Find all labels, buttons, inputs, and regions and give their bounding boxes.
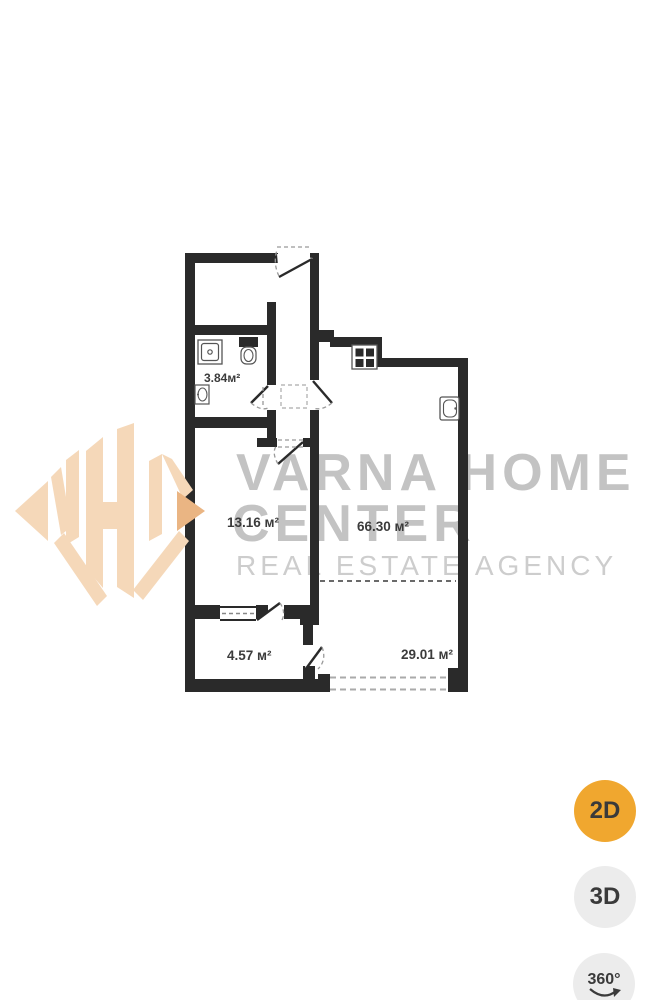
- logo-accent-tip: [177, 491, 205, 531]
- view-360-label: 360°: [587, 972, 620, 988]
- view-2d-label: 2D: [590, 797, 621, 825]
- view-3d-label: 3D: [590, 883, 621, 911]
- floorplan-viewer-page: VARNA HOME CENTER REAL ESTATE AGENCY: [0, 0, 653, 1000]
- varna-home-center-logo: [0, 0, 653, 1000]
- rotate-arrow-icon: [586, 988, 622, 1000]
- view-2d-button[interactable]: 2D: [574, 780, 636, 842]
- view-3d-button[interactable]: 3D: [574, 866, 636, 928]
- logo-monogram-icon: [15, 423, 205, 606]
